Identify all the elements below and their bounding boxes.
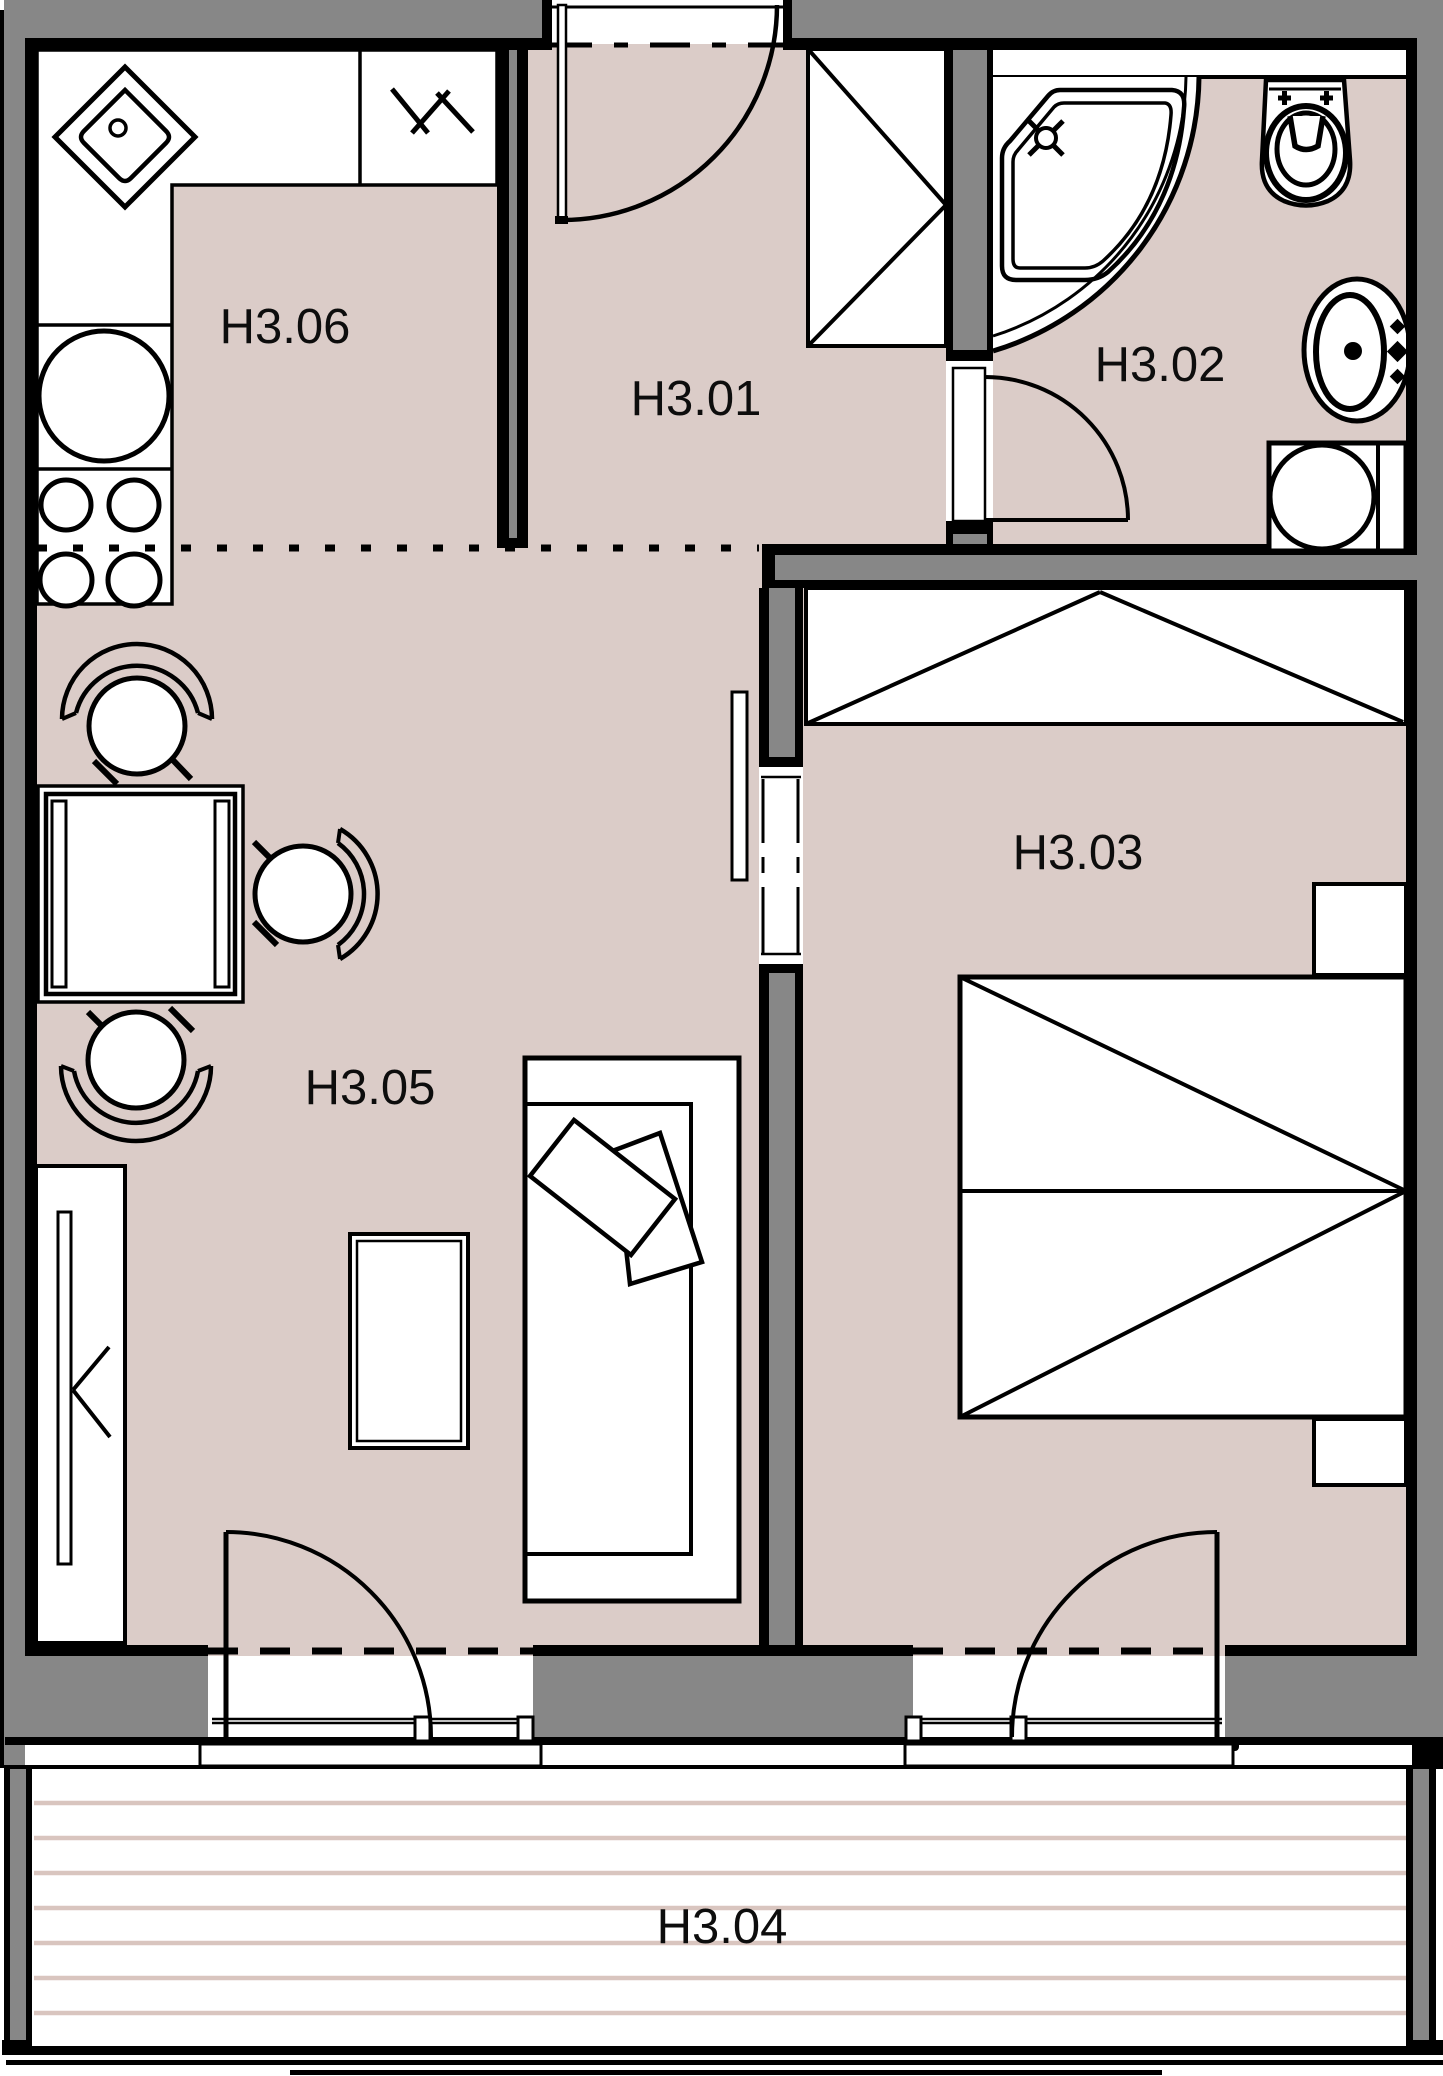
svg-text:H3.02: H3.02 xyxy=(1095,338,1226,392)
svg-text:H3.04: H3.04 xyxy=(657,1900,788,1954)
svg-text:H3.01: H3.01 xyxy=(631,372,762,426)
svg-text:H3.05: H3.05 xyxy=(305,1061,436,1115)
svg-text:H3.03: H3.03 xyxy=(1013,826,1144,880)
svg-text:H3.06: H3.06 xyxy=(220,300,351,354)
